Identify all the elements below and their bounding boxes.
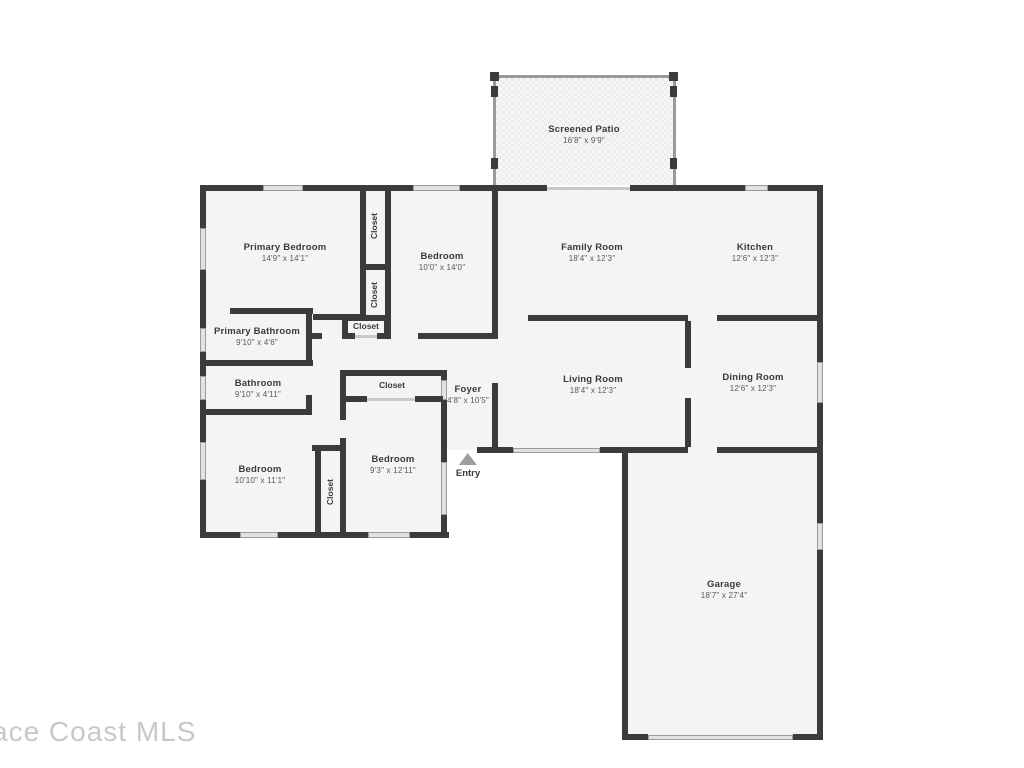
room-dims: 10'0" x 14'0" [419,263,465,272]
room-name: Screened Patio [548,124,619,135]
room-name: Bedroom [419,251,465,262]
patio-post [669,72,678,81]
wall-segment [441,370,447,380]
wall-segment [441,400,447,447]
wall-segment [230,308,313,314]
room-dims: 18'7" x 27'4" [701,591,747,600]
room-name: Garage [701,579,747,590]
room-label-bedroom-bottom-left: Bedroom 10'10" x 11'1" [235,464,286,485]
window [263,185,303,191]
room-name: Primary Bedroom [244,242,327,253]
closet-label-strip-lower: Closet [369,282,379,308]
room-name: Bedroom [370,454,416,465]
window [817,523,823,550]
room-label-kitchen: Kitchen 12'6" x 12'3" [732,242,778,263]
room-name: Primary Bathroom [214,326,300,337]
room-name: Family Room [561,242,623,253]
window [817,362,823,403]
room-label-primary-bathroom: Primary Bathroom 9'10" x 4'6" [214,326,300,347]
entry-marker: Entry [456,453,480,479]
sliding-door [547,187,630,190]
wall-segment [415,396,443,402]
patio-wall [493,75,676,78]
entry-arrow-icon [459,453,477,465]
room-name: Living Room [563,374,623,385]
wall-segment [768,185,823,191]
window [745,185,768,191]
wall-segment [200,532,240,538]
wall-segment [200,185,206,228]
room-label-screened-patio: Screened Patio 16'8" x 9'9" [548,124,619,145]
wall-segment [303,185,413,191]
room-label-primary-bedroom: Primary Bedroom 14'9" x 14'1" [244,242,327,263]
room-label-bedroom-top: Bedroom 10'0" x 14'0" [419,251,465,272]
floor-plan: Screened Patio 16'8" x 9'9" Primary Bedr… [0,0,1024,768]
window [648,735,793,740]
wall-segment [817,185,823,362]
wall-segment [460,185,547,191]
wall-segment [203,409,310,415]
wall-segment [200,185,263,191]
room-label-living-room: Living Room 18'4" x 12'3" [563,374,623,395]
room-dims: 18'4" x 12'3" [563,386,623,395]
room-name: Bathroom [235,378,281,389]
wall-segment [817,550,823,740]
window [368,532,410,538]
wall-segment [717,447,823,453]
wall-segment [200,400,206,442]
wall-segment [622,447,628,740]
patio-post [670,158,677,169]
closet-label-hall: Closet [353,321,379,331]
window [413,185,460,191]
room-label-bedroom-bottom-middle: Bedroom 9'3" x 12'11" [370,454,416,475]
window [200,442,206,480]
wall-segment [817,403,823,523]
wall-segment [278,532,368,538]
patio-post [670,86,677,97]
room-label-dining-room: Dining Room 12'6" x 12'3" [722,372,783,393]
room-dims: 12'6" x 12'3" [722,384,783,393]
closet-label-between-bedrooms: Closet [325,479,335,505]
wall-segment [310,333,322,339]
wall-segment [410,532,449,538]
window [513,448,600,453]
wall-segment [492,383,498,453]
window [200,376,206,400]
wall-segment [622,734,648,740]
wall-segment [441,447,447,462]
wall-segment [340,438,346,532]
closet-label-strip-upper: Closet [369,213,379,239]
room-dims: 4'8" x 10'5" [447,396,489,405]
room-dims: 12'6" x 12'3" [732,254,778,263]
room-dims: 9'10" x 4'6" [214,338,300,347]
patio-post [491,158,498,169]
room-dims: 9'3" x 12'11" [370,466,416,475]
window [200,228,206,270]
room-name: Kitchen [732,242,778,253]
wall-segment [342,370,443,376]
room-name: Bedroom [235,464,286,475]
wall-segment [418,333,498,339]
room-name: Dining Room [722,372,783,383]
wall-segment [477,447,513,453]
room-label-bathroom: Bathroom 9'10" x 4'11" [235,378,281,399]
wall-segment [685,321,691,368]
room-label-family-room: Family Room 18'4" x 12'3" [561,242,623,263]
room-dims: 10'10" x 11'1" [235,476,286,485]
wall-segment [306,395,312,415]
wall-segment [600,447,688,453]
room-dims: 18'4" x 12'3" [561,254,623,263]
wall-segment [685,398,691,447]
wall-segment [717,315,823,321]
wall-segment [360,270,366,318]
wall-segment [200,270,206,328]
room-dims: 9'10" x 4'11" [235,390,281,399]
entry-label: Entry [456,468,480,479]
wall-segment [200,360,313,366]
closet-label-bedroom: Closet [379,380,405,390]
window [441,462,447,515]
window [240,532,278,538]
wall-segment [360,191,366,266]
patio-post [490,72,499,81]
patio-post [491,86,498,97]
room-name: Foyer [447,384,489,395]
wall-segment [528,315,688,321]
room-label-foyer: Foyer 4'8" x 10'5" [447,384,489,405]
window [200,328,206,352]
watermark: ace Coast MLS [0,716,196,748]
wall-segment [492,185,498,339]
wall-segment [200,352,206,376]
sliding-door [355,335,377,338]
room-dims: 14'9" x 14'1" [244,254,327,263]
wall-segment [200,480,206,538]
room-label-garage: Garage 18'7" x 27'4" [701,579,747,600]
room-dims: 16'8" x 9'9" [548,136,619,145]
wall-segment [340,370,346,420]
wall-segment [315,451,321,532]
wall-segment [342,321,348,339]
sliding-door [367,398,415,401]
wall-segment [630,185,745,191]
